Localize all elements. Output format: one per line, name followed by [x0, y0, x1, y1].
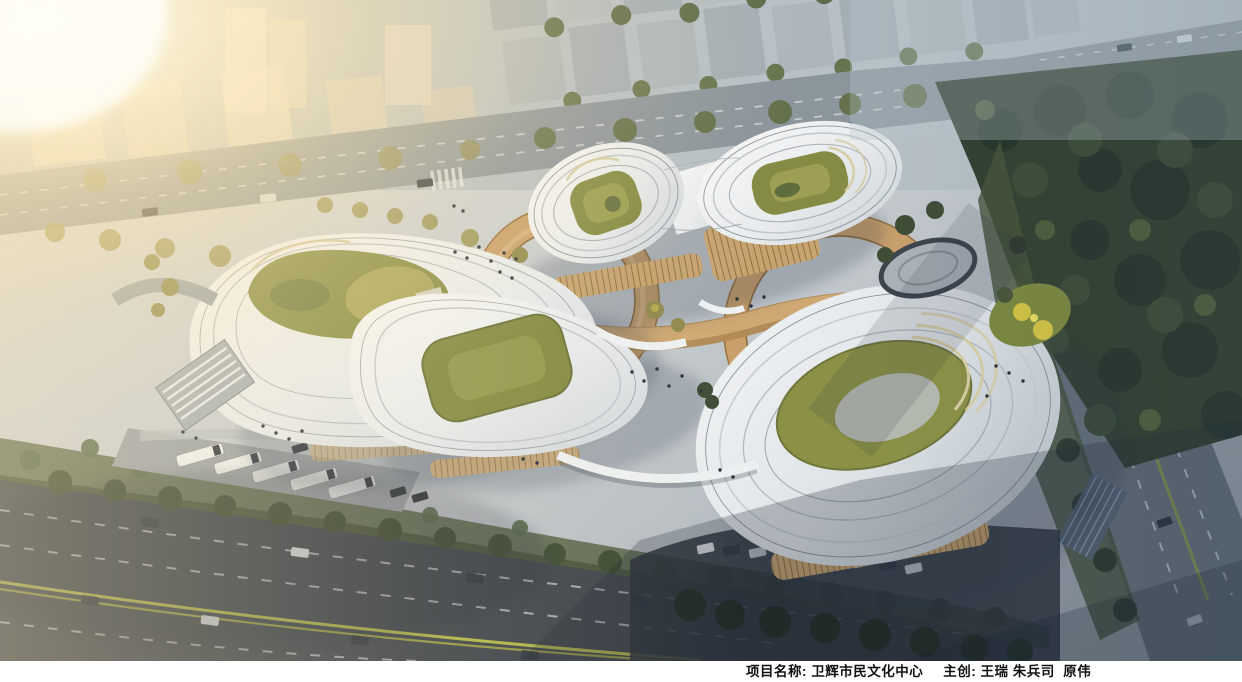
caption-project-label: 项目名称: — [746, 661, 811, 682]
caption-creators: 王瑞 朱兵司 原伟 — [981, 661, 1092, 682]
sun-glare — [0, 0, 1242, 661]
caption-project-name: 卫辉市民文化中心 — [811, 661, 923, 682]
aerial-rendering — [0, 0, 1242, 661]
caption-bar: 项目名称: 卫辉市民文化中心 主创: 王瑞 朱兵司 原伟 — [0, 661, 1242, 682]
atmosphere — [0, 0, 1242, 661]
screenshot-root: 项目名称: 卫辉市民文化中心 主创: 王瑞 朱兵司 原伟 — [0, 0, 1242, 682]
caption-creator-label: 主创: — [943, 661, 980, 682]
rendering-canvas — [0, 0, 1242, 661]
